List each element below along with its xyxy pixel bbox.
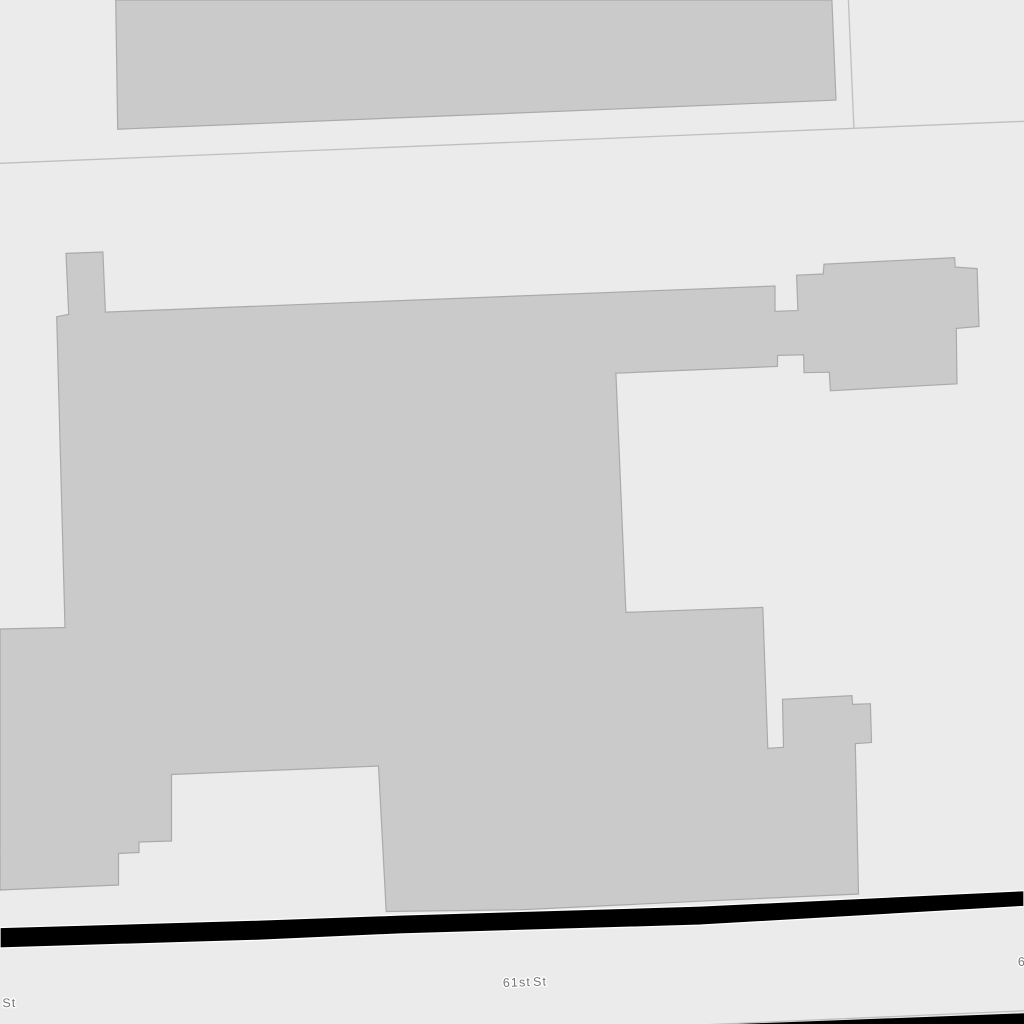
svg-text:61st St: 61st St [503,974,548,990]
svg-text:61: 61 [1018,954,1024,969]
svg-text:St: St [2,996,16,1010]
